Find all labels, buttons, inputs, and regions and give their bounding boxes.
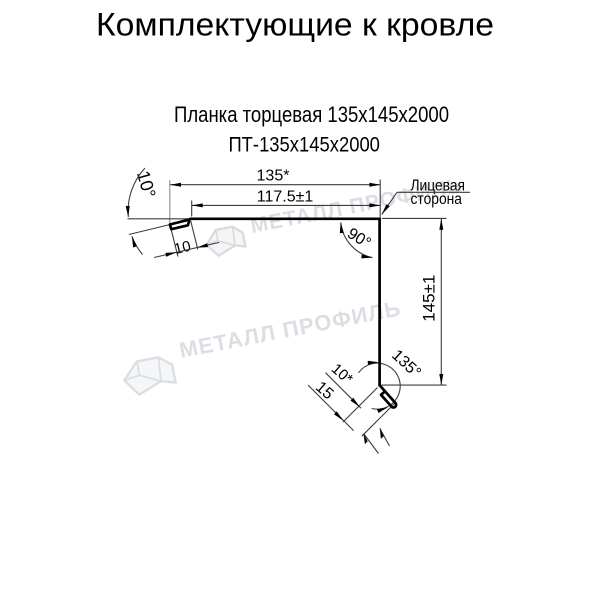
svg-text:ПТ-135х145х2000: ПТ-135х145х2000 [228,133,380,156]
svg-text:10*: 10* [328,360,356,388]
svg-text:117.5±1: 117.5±1 [257,189,314,206]
svg-text:Планка торцевая 135х145х2000: Планка торцевая 135х145х2000 [174,102,449,127]
svg-text:Комплектующие к кровле: Комплектующие к кровле [96,7,494,43]
svg-text:МЕТАЛЛ ПРОФИЛЬ: МЕТАЛЛ ПРОФИЛЬ [177,295,403,363]
svg-text:135°: 135° [388,347,424,382]
svg-text:90°: 90° [344,225,374,252]
svg-text:145±1: 145±1 [420,275,439,322]
svg-text:сторона: сторона [411,191,463,208]
svg-text:10°: 10° [133,169,160,201]
svg-text:135*: 135* [257,167,290,184]
svg-text:15: 15 [312,379,337,404]
